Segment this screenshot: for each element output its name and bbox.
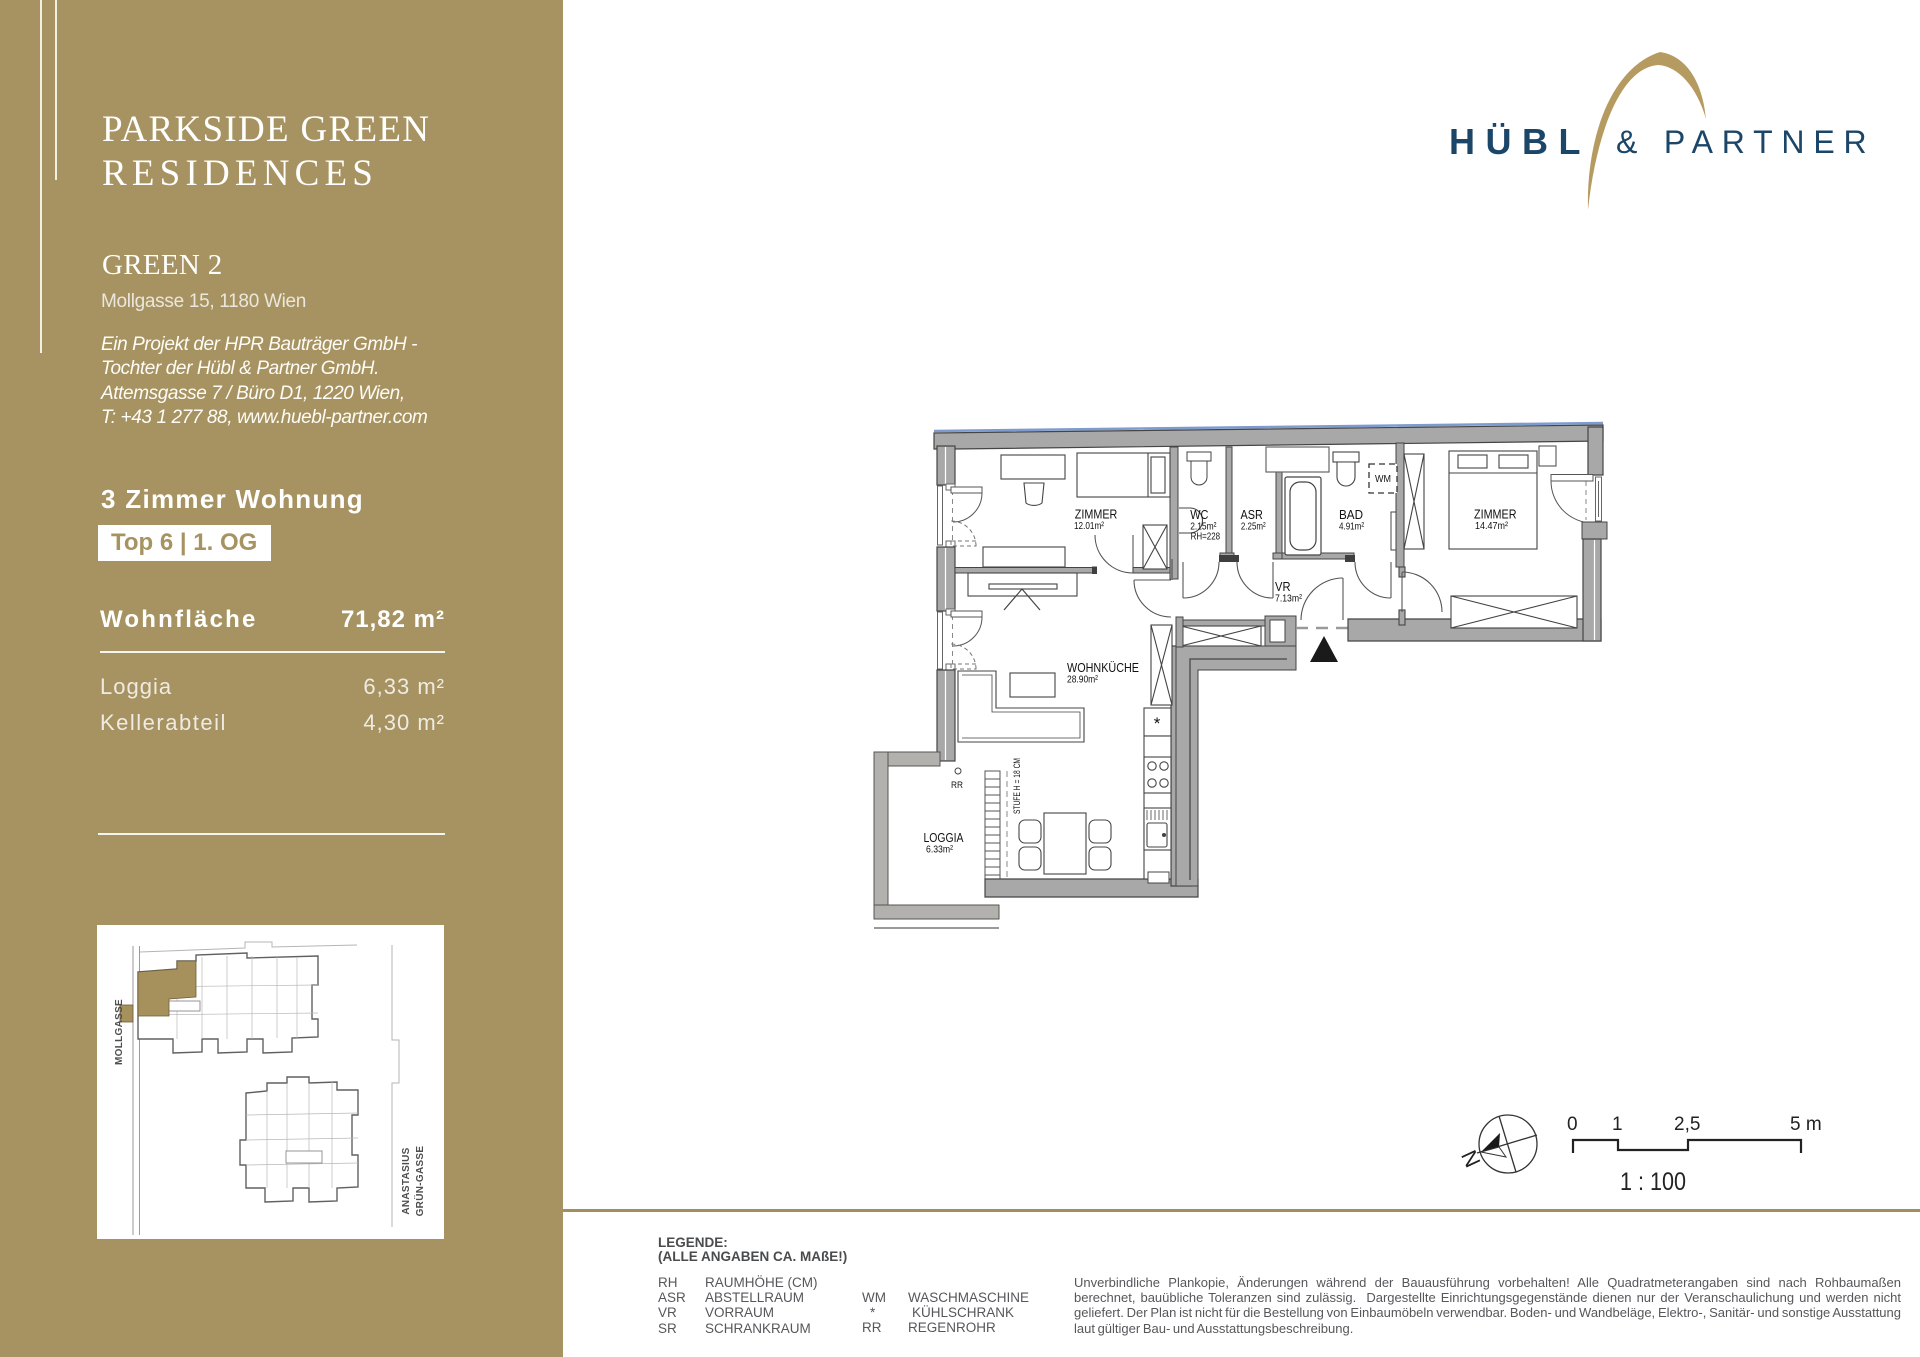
svg-text:N: N [1456,1146,1485,1171]
svg-text:12.01m²: 12.01m² [1074,520,1104,532]
svg-text:2.25m²: 2.25m² [1241,520,1266,532]
svg-text:1 : 100: 1 : 100 [1620,1168,1686,1196]
svg-text:VR: VR [1275,579,1291,594]
svg-text:7.13m²: 7.13m² [1275,592,1302,604]
svg-text:2,5: 2,5 [1674,1114,1700,1135]
svg-text:HÜBL: HÜBL [1449,121,1591,162]
svg-text:0: 0 [1567,1114,1578,1135]
svg-text:& PARTNER: & PARTNER [1616,124,1875,160]
svg-text:LOGGIA: LOGGIA [924,830,964,845]
svg-text:MOLLGASSE: MOLLGASSE [114,999,125,1065]
svg-text:WC: WC [1190,507,1208,522]
svg-text:RH=228: RH=228 [1191,531,1221,543]
svg-text:28.90m²: 28.90m² [1067,673,1098,685]
svg-text:GRÜN-GASSE: GRÜN-GASSE [413,1146,426,1217]
svg-text:4.91m²: 4.91m² [1339,520,1364,532]
svg-text:ZIMMER: ZIMMER [1075,507,1118,522]
svg-text:ANASTASIUS: ANASTASIUS [401,1147,412,1214]
svg-text:RR: RR [951,780,963,790]
svg-text:WOHNKÜCHE: WOHNKÜCHE [1067,660,1139,675]
svg-text:STUFE H = 18 CM: STUFE H = 18 CM [1012,758,1023,814]
svg-text:*: * [1154,714,1161,733]
svg-text:5 m: 5 m [1790,1114,1822,1135]
svg-text:WM: WM [1375,474,1391,485]
svg-text:ASR: ASR [1241,507,1263,522]
svg-text:BAD: BAD [1339,507,1363,522]
svg-text:2.15m²: 2.15m² [1190,520,1217,532]
svg-text:14.47m²: 14.47m² [1475,520,1508,532]
svg-text:1: 1 [1612,1114,1623,1135]
svg-text:6.33m²: 6.33m² [926,843,953,855]
svg-text:ZIMMER: ZIMMER [1474,507,1517,522]
